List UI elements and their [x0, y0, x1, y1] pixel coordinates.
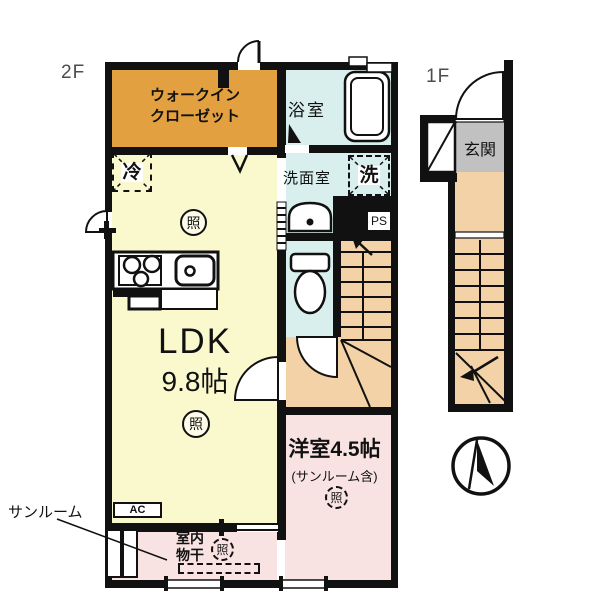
- light-label: 照: [187, 213, 201, 233]
- sunroom-label: サンルーム: [8, 501, 83, 522]
- pipe-space-label: PS: [371, 214, 387, 228]
- closet-label-line2: クローゼット: [128, 105, 262, 126]
- light-symbol-ldk-lower: 照: [182, 410, 210, 438]
- wall-1f-bottom: [448, 404, 513, 412]
- room-stairs-2f: [341, 235, 391, 407]
- wall-western-top: [278, 407, 391, 415]
- bathroom-label: 浴室: [288, 96, 326, 121]
- light-symbol-western: 照: [325, 486, 348, 509]
- ac-box: AC: [113, 502, 162, 518]
- washroom-label: 洗面室: [283, 167, 331, 188]
- wall-bottom: [105, 580, 398, 588]
- wall-left: [105, 62, 112, 588]
- opening-closet-top-door: [238, 62, 260, 70]
- washer-label: 洗: [358, 166, 379, 185]
- floor-plan: 冷 洗 PS AC 照 照 照 照 2F 1F ウォークイン クローゼット 浴室…: [0, 0, 600, 600]
- light-symbol-sunroom: 照: [211, 538, 234, 561]
- room-stairs-1f: [455, 238, 504, 405]
- light-label: 照: [189, 414, 203, 434]
- opening-ldk-door: [277, 362, 286, 400]
- wall-toilet-right: [333, 227, 341, 337]
- pipe-space-box: PS: [366, 210, 392, 232]
- room-hall-2f: [285, 337, 341, 407]
- closet-top-door-arc: [238, 41, 259, 63]
- compass-north-icon: [453, 438, 509, 494]
- refrigerator-label: 冷: [121, 163, 142, 182]
- closet-label-line1: ウォークイン: [128, 84, 262, 105]
- ldk-size-label: 9.8帖: [112, 360, 278, 400]
- room-hall-1f: [455, 172, 505, 234]
- wall-1f-left: [448, 173, 455, 412]
- wall-ldk-bottom: [112, 523, 238, 532]
- western-room-label: 洋室4.5帖: [278, 433, 391, 463]
- porch-diagonal: [427, 122, 455, 172]
- porch-box: [427, 122, 455, 172]
- ac-label: AC: [130, 504, 146, 516]
- wall-1f-porch-left: [420, 115, 427, 181]
- entrance-door-arc: [456, 72, 503, 119]
- wall-washroom-bottom: [278, 233, 335, 241]
- western-room-note: (サンルーム含): [278, 466, 391, 485]
- light-symbol-ldk-upper: 照: [180, 209, 207, 236]
- opening-bath-door: [285, 145, 309, 153]
- washer-box: 洗: [348, 155, 390, 196]
- entrance-label: 玄関: [455, 136, 505, 160]
- refrigerator-box: 冷: [112, 152, 152, 192]
- floor-tag-2f: 2F: [61, 62, 85, 84]
- wall-1f-right: [504, 60, 513, 412]
- room-toilet: [285, 241, 333, 337]
- wall-right: [391, 62, 398, 588]
- opening-closet-entry: [228, 147, 247, 155]
- opening-left-vent: [105, 212, 112, 232]
- floor-tag-1f: 1F: [426, 66, 450, 88]
- ldk-label: LDK: [112, 322, 278, 362]
- light-label: 照: [216, 541, 228, 558]
- light-label: 照: [330, 489, 342, 506]
- indoor-drying-line2: 物干: [176, 545, 204, 565]
